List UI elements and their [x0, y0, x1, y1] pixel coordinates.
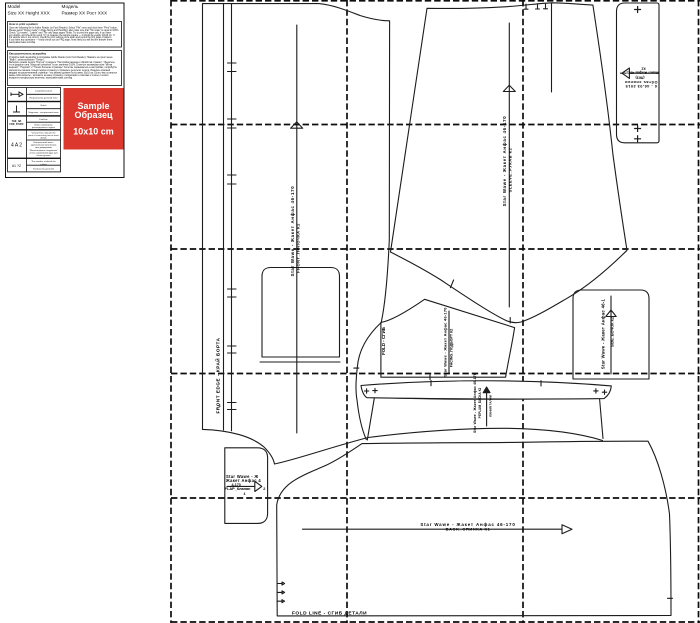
svg-text:Как распечатать выкройку: Как распечатать выкройку: [9, 52, 46, 56]
svg-text:SIDE_БОЧОК К2: SIDE_БОЧОК К2: [611, 317, 615, 347]
svg-text:вырезки", "Подписи" и "Только: вырезки", "Подписи" и "Только большие ст…: [9, 66, 118, 69]
svg-text:Направление долевой нити: Направление долевой нити: [29, 97, 58, 100]
svg-text:6 - 46-03 2015: 6 - 46-03 2015: [625, 84, 657, 88]
svg-text:ЛИНИЯ ТАЛИИ: ЛИНИЯ ТАЛИИ: [489, 395, 493, 417]
svg-text:Количество деталей: Количество деталей: [33, 168, 54, 171]
svg-text:2: 2: [263, 487, 265, 491]
svg-text:Образец: Образец: [74, 110, 113, 120]
svg-text:имх деформами: имх деформами: [35, 146, 52, 149]
svg-text:How to print a pattern: How to print a pattern: [9, 22, 38, 26]
svg-text:чтобы симметрией друг для: чтобы симметрией друг для: [29, 151, 58, 154]
svg-text:(ЛКЗ): (ЛКЗ): [636, 75, 645, 79]
svg-text:#1 ?2: #1 ?2: [12, 164, 21, 168]
svg-text:"Файл", затем выберите "Печать: "Файл", затем выберите "Печать".: [9, 58, 45, 61]
svg-text:выкроек в натуральную величину: выкроек в натуральную величину: www.patt…: [9, 77, 73, 80]
svg-text:Откройте файл выкройки в прогр: Откройте файл выкройки в программе Adobe…: [9, 56, 113, 59]
svg-text:К2: К2: [641, 66, 645, 70]
svg-text:Star Wawe - Жакет Анфас 46-170: Star Wawe - Жакет Анфас 46-170: [290, 186, 295, 277]
svg-text:квадрат на распечатанной стран: квадрат на распечатанной странице - его …: [9, 71, 118, 74]
svg-text:The number of details for: The number of details for: [31, 160, 56, 163]
svg-text:FLAP_Клапан: FLAP_Клапан: [225, 487, 251, 491]
svg-text:Fold line: Fold line: [39, 119, 48, 121]
svg-text:FRONT EDGE - КРАЙ БОРТА: FRONT EDGE - КРАЙ БОРТА: [214, 337, 221, 413]
svg-text:Star Wawe - Жакет Анфас 46-170: Star Wawe - Жакет Анфас 46-170: [473, 373, 477, 433]
svg-text:Notch: Notch: [41, 104, 47, 107]
svg-text:Надсечка - контрольный знак: Надсечка - контрольный знак: [29, 111, 59, 114]
svg-text:FACING_ПОДБОРТ К2: FACING_ПОДБОРТ К2: [450, 329, 454, 368]
svg-text:Жакет Анфас 4: Жакет Анфас 4: [225, 478, 261, 483]
svg-text:Star Wawe - Жакет Анфас 46-1: Star Wawe - Жакет Анфас 46-1: [601, 298, 606, 369]
svg-text:point of connecting two or mor: point of connecting two or more: [28, 134, 59, 137]
svg-text:Обтач спинки: Обтач спинки: [624, 80, 657, 84]
svg-text:"Мтной вырезок соединяем": "Мтной вырезок соединяем": [29, 149, 58, 152]
svg-text:Longitudinal grain: Longitudinal grain: [35, 90, 53, 93]
svg-text:Star Wawe - Жакет Анфас 46-170: Star Wawe - Жакет Анфас 46-170: [502, 116, 507, 207]
svg-text:10x10 cm: 10x10 cm: [73, 127, 114, 137]
svg-text:Model: Model: [8, 4, 21, 9]
svg-text:Размер XX Рост XXX: Размер XX Рост XXX: [62, 11, 109, 16]
svg-text:cutting: cutting: [40, 163, 47, 166]
svg-text:белое детали: белое детали: [37, 155, 52, 157]
svg-text:PEPLUM_БАСКА К2: PEPLUM_БАСКА К2: [478, 387, 482, 418]
svg-text:details: details: [40, 137, 47, 140]
svg-text:Size XX Height XXX: Size XX Height XXX: [8, 11, 51, 16]
svg-text:4: 4: [244, 492, 246, 496]
svg-text:4: 4: [219, 404, 221, 408]
svg-text:напечатать сначала только перв: напечатать сначала только первую страниц…: [9, 69, 111, 72]
svg-text:FOR_STUFF: FOR_STUFF: [9, 123, 24, 126]
svg-text:Vertical lines indicate the: Vertical lines indicate the: [31, 131, 56, 134]
svg-text:Выберите режим печати "Постер": Выберите режим печати "Постер" в разделе…: [9, 61, 116, 64]
svg-text:4 A 2: 4 A 2: [11, 143, 22, 149]
svg-text:Жакет Анфас 46-170: Жакет Анфас 46-170: [623, 70, 660, 74]
svg-text:раскладывается вдоль: раскладывается вдоль: [32, 127, 56, 129]
svg-text:BACK_СПИНКА К1: BACK_СПИНКА К1: [446, 527, 491, 532]
svg-text:Модель: Модель: [62, 4, 79, 9]
svg-text:FRONT_ПОЛОЧКА К2: FRONT_ПОЛОЧКА К2: [295, 223, 300, 273]
svg-text:SLEEVE_РУКАВ К2: SLEEVE_РУКАВ К2: [508, 147, 513, 192]
svg-text:www.patternsass.com/faq: www.patternsass.com/faq: [9, 41, 36, 44]
svg-text:Star Wawe - Жакет Анфас 46-170: Star Wawe - Жакет Анфас 46-170: [444, 307, 448, 376]
svg-text:FOLD LINE - СГИБ ДЕТАЛИ: FOLD LINE - СГИБ ДЕТАЛИ: [292, 611, 367, 617]
svg-text:Контрольный знак с: Контрольный знак с: [33, 141, 54, 144]
svg-text:FOLD - СГИБ: FOLD - СГИБ: [381, 327, 386, 355]
